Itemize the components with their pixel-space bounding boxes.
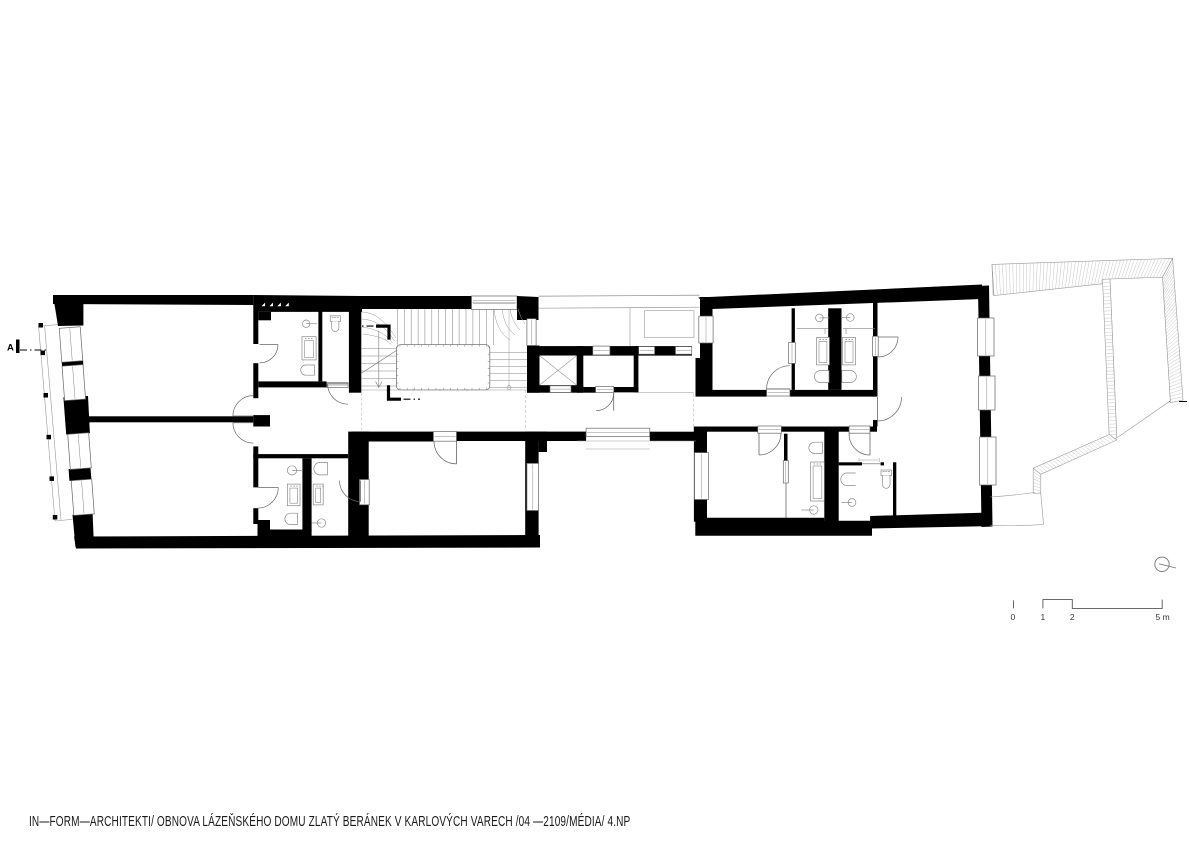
svg-text:1: 1 [1041,612,1046,622]
svg-text:5 m: 5 m [1156,612,1170,622]
svg-text:IN—FORM—ARCHITEKTI/ OBNOVA LÁZ: IN—FORM—ARCHITEKTI/ OBNOVA LÁZEŇSKÉHO DO… [29,812,630,830]
svg-text:2: 2 [1070,612,1075,622]
svg-text:0: 0 [1011,612,1016,622]
svg-text:A: A [7,343,14,354]
